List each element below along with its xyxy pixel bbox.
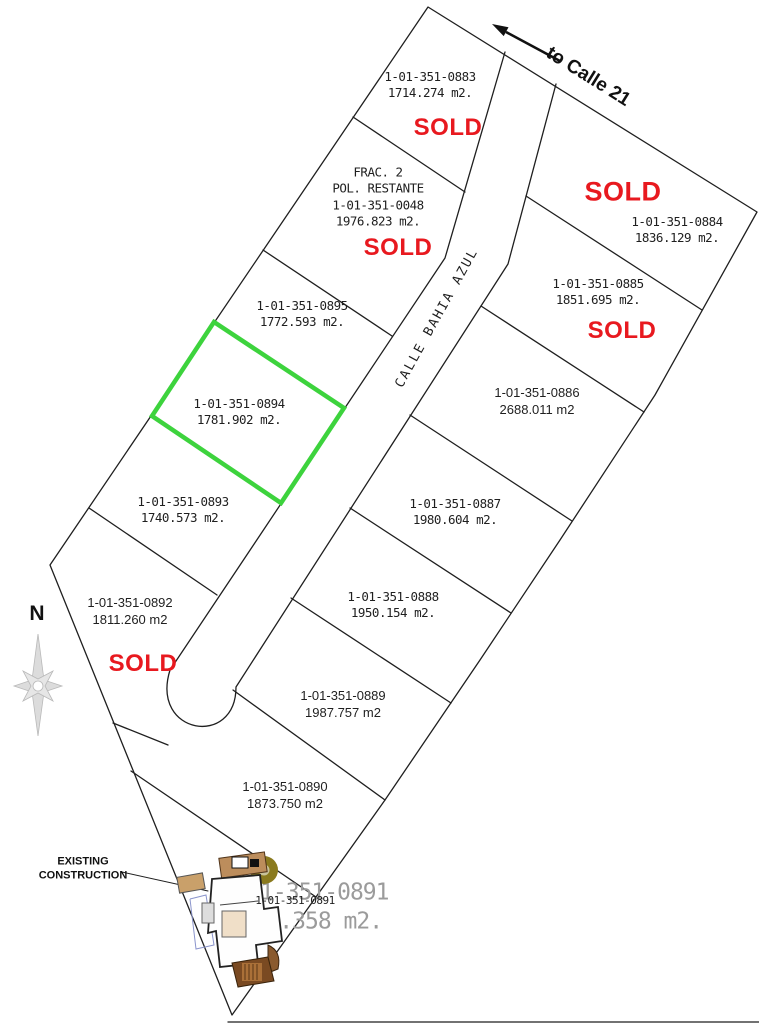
lot-label-0890: 1-01-351-0890 1873.750 m2	[242, 779, 327, 813]
lot-id: 1-01-351-0892	[87, 595, 172, 612]
lot-id: 1-01-351-0048	[332, 197, 423, 213]
lot-area: 1836.129 m2.	[631, 230, 722, 246]
lot-id: 1-01-351-0885	[552, 276, 643, 292]
lot-label-0887: 1-01-351-0887 1980.604 m2.	[409, 496, 500, 529]
lot-label-0893: 1-01-351-0893 1740.573 m2.	[137, 494, 228, 527]
lot-id: 1-01-351-0884	[631, 214, 722, 230]
lot-name: FRAC. 2	[332, 165, 423, 181]
lot-id: 1-01-351-0895	[256, 298, 347, 314]
lot-area: 1976.823 m2.	[332, 213, 423, 229]
lot-label-0894: 1-01-351-0894 1781.902 m2.	[193, 396, 284, 429]
lot-label-0888: 1-01-351-0888 1950.154 m2.	[347, 589, 438, 622]
lot-name: POL. RESTANTE	[332, 181, 423, 197]
lot-id: 1-01-351-0894	[193, 396, 284, 412]
sold-badge-0883: SOLD	[414, 114, 483, 142]
sold-badge-0885: SOLD	[588, 317, 657, 345]
lot-label-0883: 1-01-351-0883 1714.274 m2.	[384, 69, 475, 102]
subdivision-plat-map: 1-01-351-0883 1714.274 m2. SOLD FRAC. 2 …	[0, 0, 759, 1024]
lot-area: 1781.902 m2.	[193, 412, 284, 428]
lot-id: 1-01-351-0891	[255, 894, 335, 908]
lot-id: 1-01-351-0887	[409, 496, 500, 512]
existing-construction-illustration	[170, 843, 310, 1003]
lot-id: 1-01-351-0888	[347, 589, 438, 605]
lot-area: 2688.011 m2	[494, 402, 579, 419]
lot-id: 1-01-351-0889	[300, 688, 385, 705]
lot-label-0891-overlay: 1-01-351-0891	[255, 894, 335, 908]
lot-label-frac2: FRAC. 2 POL. RESTANTE 1-01-351-0048 1976…	[332, 165, 423, 230]
lot-id: 1-01-351-0893	[137, 494, 228, 510]
lot-area: 1740.573 m2.	[137, 510, 228, 526]
lot-id: 1-01-351-0886	[494, 385, 579, 402]
lot-label-0889: 1-01-351-0889 1987.757 m2	[300, 688, 385, 722]
lot-area: 1851.695 m2.	[552, 292, 643, 308]
lot-label-0886: 1-01-351-0886 2688.011 m2	[494, 385, 579, 419]
lot-area: 1873.750 m2	[242, 796, 327, 813]
lot-area: 1980.604 m2.	[409, 512, 500, 528]
lot-label-0892: 1-01-351-0892 1811.260 m2	[87, 595, 172, 629]
lot-area: 1987.757 m2	[300, 705, 385, 722]
sold-badge-frac2: SOLD	[364, 234, 433, 262]
lot-label-0895: 1-01-351-0895 1772.593 m2.	[256, 298, 347, 331]
lot-area: 1811.260 m2	[87, 612, 172, 629]
lot-id: 1-01-351-0883	[384, 69, 475, 85]
north-label: N	[29, 602, 44, 626]
lot-id: 1-01-351-0890	[242, 779, 327, 796]
lot-area: 1950.154 m2.	[347, 605, 438, 621]
lot-area: 1714.274 m2.	[384, 85, 475, 101]
existing-construction-note: EXISTING CONSTRUCTION	[39, 855, 128, 884]
lot-label-0884: 1-01-351-0884 1836.129 m2.	[631, 214, 722, 247]
sold-badge-0892: SOLD	[109, 650, 178, 678]
lot-label-0885: 1-01-351-0885 1851.695 m2.	[552, 276, 643, 309]
lot-area: 1772.593 m2.	[256, 314, 347, 330]
sold-badge-0884: SOLD	[584, 177, 661, 208]
compass-rose-icon	[14, 634, 62, 736]
